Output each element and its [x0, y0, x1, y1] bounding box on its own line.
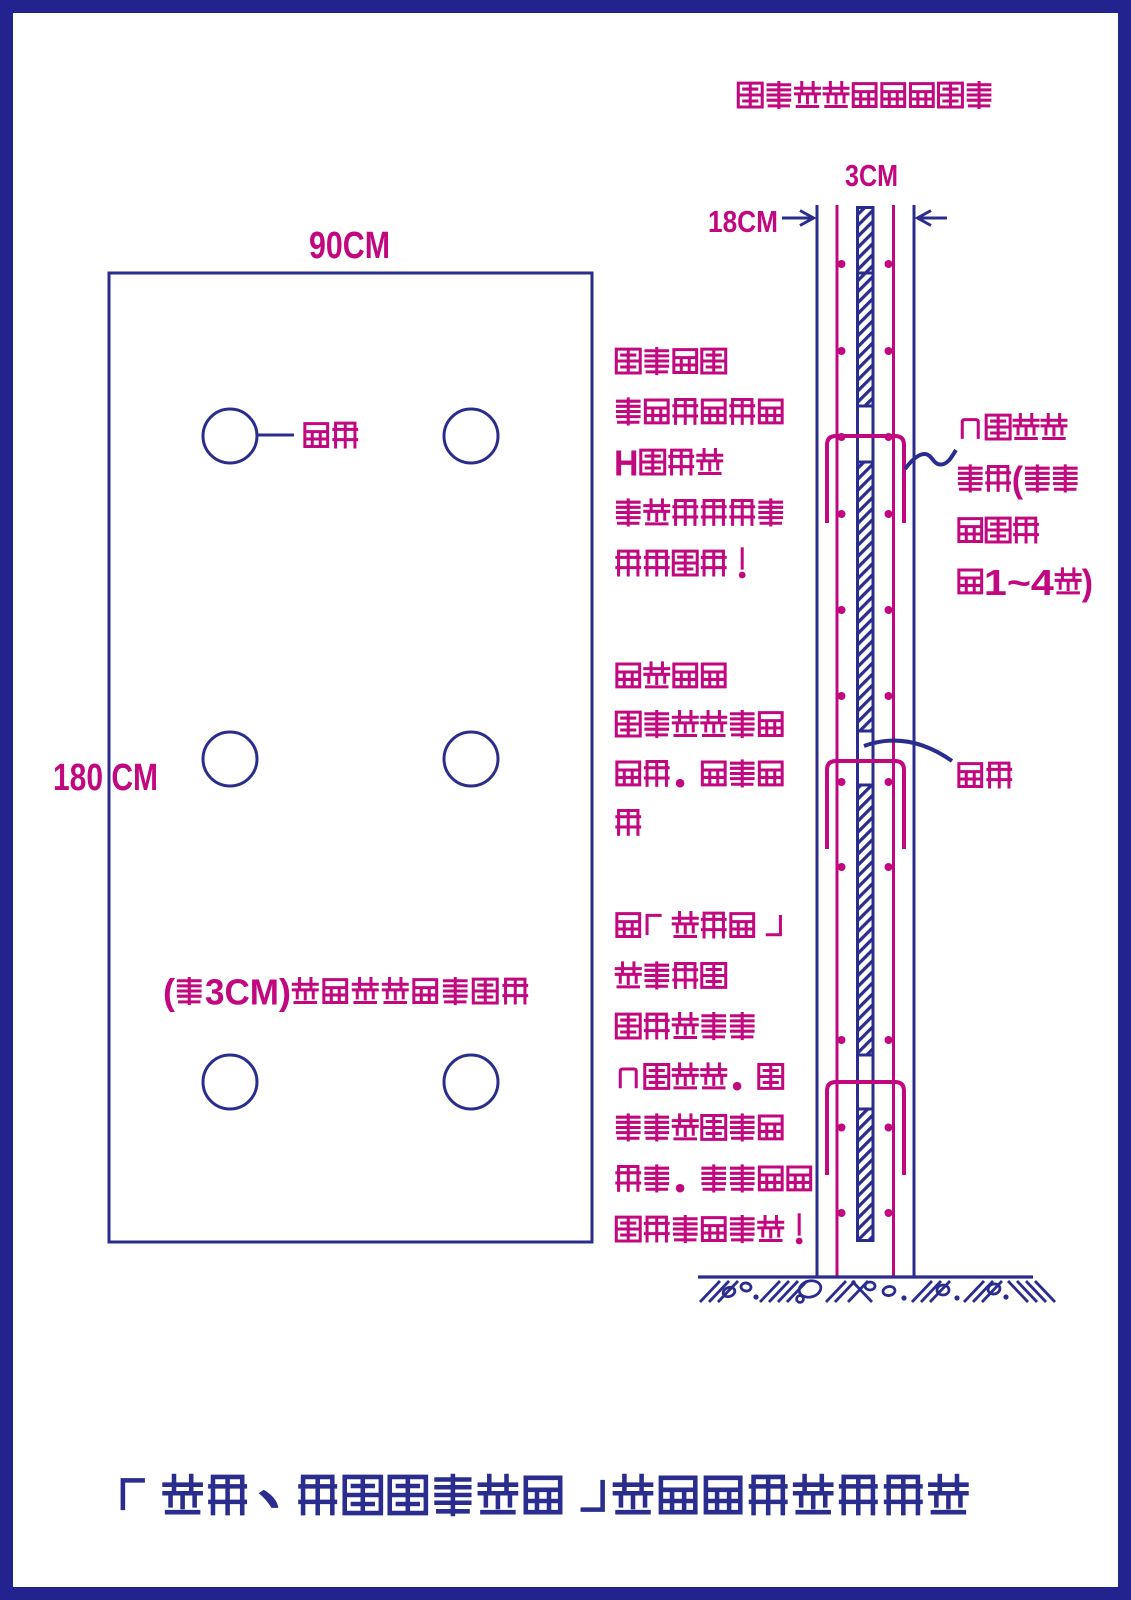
svg-text:(: ( — [1012, 459, 1024, 500]
svg-text:): ) — [279, 971, 291, 1012]
svg-text:3CM: 3CM — [205, 971, 279, 1012]
svg-text:180 CM: 180 CM — [53, 757, 158, 799]
svg-text:3CM: 3CM — [845, 158, 898, 193]
svg-text:90CM: 90CM — [309, 225, 390, 267]
svg-text:(: ( — [163, 971, 176, 1012]
svg-text:H: H — [614, 442, 639, 483]
svg-text:1~4: 1~4 — [984, 562, 1055, 603]
svg-text:): ) — [1082, 562, 1093, 603]
svg-text:18CM: 18CM — [708, 204, 778, 239]
